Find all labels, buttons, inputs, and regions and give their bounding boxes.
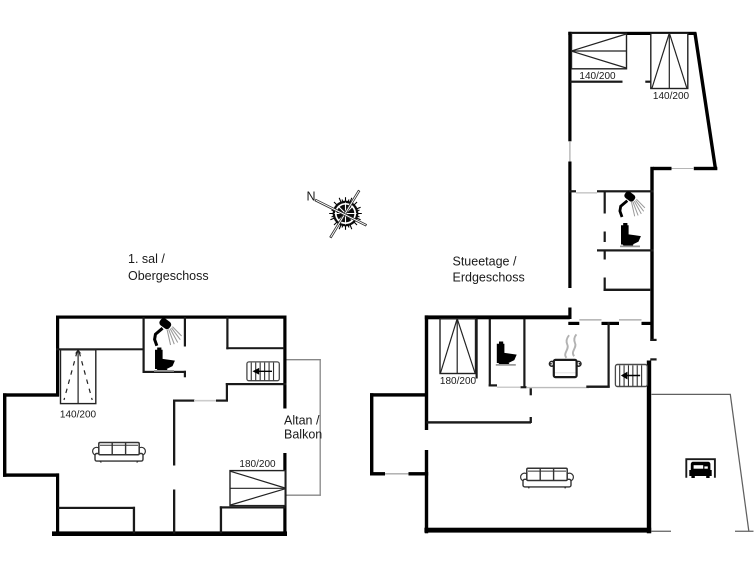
- svg-text:140/200: 140/200: [653, 91, 690, 102]
- svg-text:N: N: [307, 190, 316, 204]
- svg-text:Obergeschoss: Obergeschoss: [128, 269, 209, 283]
- svg-text:180/200: 180/200: [440, 376, 477, 387]
- svg-text:Stueetage /: Stueetage /: [453, 255, 517, 269]
- svg-text:Altan /: Altan /: [284, 414, 320, 428]
- svg-text:Erdgeschoss: Erdgeschoss: [453, 271, 525, 285]
- svg-text:1. sal /: 1. sal /: [128, 252, 165, 266]
- svg-text:140/200: 140/200: [60, 410, 97, 421]
- svg-text:140/200: 140/200: [579, 71, 616, 82]
- svg-text:Balkon: Balkon: [284, 428, 322, 442]
- svg-text:180/200: 180/200: [239, 459, 276, 470]
